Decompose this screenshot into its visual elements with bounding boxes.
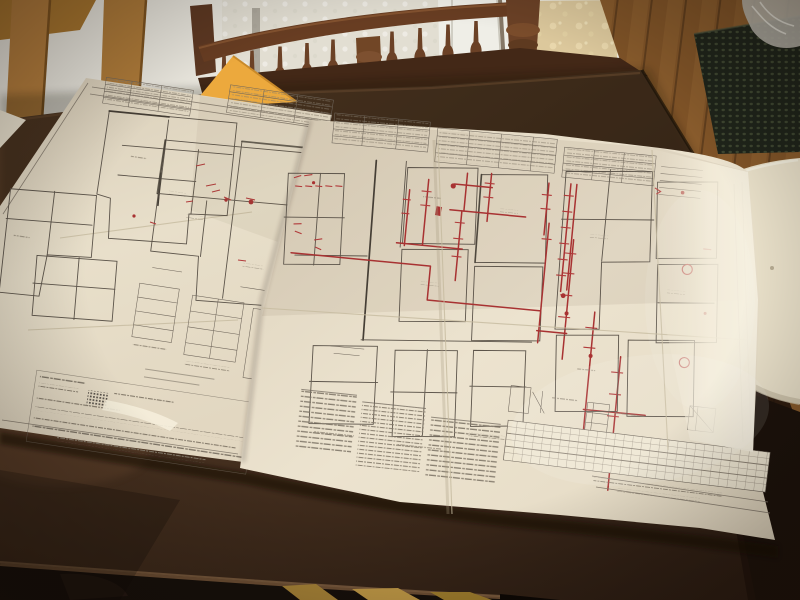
photo-blueprints-on-table — [0, 0, 800, 600]
photo-canvas — [0, 0, 800, 600]
